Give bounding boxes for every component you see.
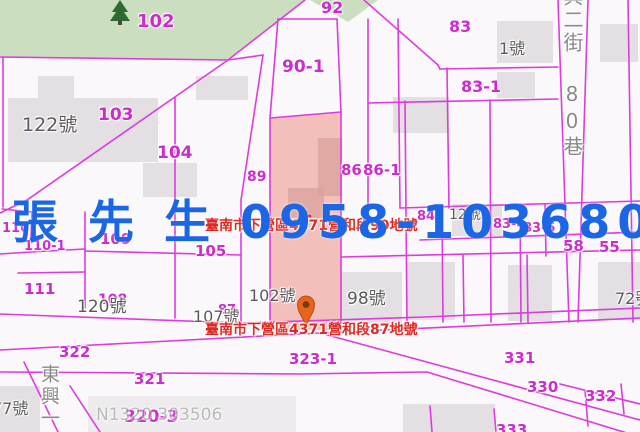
map-sheet-watermark-N1320303506: N1320 303506 — [96, 407, 222, 425]
house-number-122號: 122號 — [22, 116, 77, 136]
parcel-label-83-1: 83-1 — [461, 79, 501, 96]
parcel-label-89: 89 — [247, 170, 266, 185]
house-number-72號: 72號 — [615, 291, 640, 308]
parcel-label-111: 111 — [24, 282, 55, 298]
parcel-label-332: 332 — [585, 389, 616, 405]
parcel-label-83: 83 — [449, 19, 471, 36]
street-label-東興一: 東興一 — [38, 364, 58, 430]
parcel-label-323-1: 323-1 — [289, 352, 337, 368]
contact-overlay-text: 張 先 生 0958-103680 — [12, 186, 640, 252]
house-number-1號: 1號 — [499, 41, 525, 58]
cadastral-map[interactable]: 1021031049290-18383-18686-1898483-483-55… — [0, 0, 640, 432]
house-number-102號: 102號 — [249, 288, 296, 305]
parcel-label-330: 330 — [527, 380, 558, 396]
annotation-parcel-87: 臺南市下營區4371營和段87地號 — [205, 323, 417, 338]
parcel-label-92: 92 — [321, 0, 343, 17]
parcel-label-321: 321 — [134, 372, 165, 388]
parcel-label-90-1: 90-1 — [282, 59, 325, 77]
parcel-label-102: 102 — [137, 13, 175, 32]
parcel-label-103: 103 — [98, 107, 134, 125]
parcel-label-86-1: 86-1 — [363, 163, 401, 179]
parcel-label-322: 322 — [59, 345, 90, 361]
house-number-98號: 98號 — [347, 291, 386, 309]
parcel-label-331: 331 — [504, 351, 535, 367]
parcel-label-104: 104 — [157, 145, 193, 163]
house-number-120號: 120號 — [77, 299, 126, 317]
parcel-label-333: 333 — [496, 423, 527, 432]
street-label-興二街80巷: 興二街 80巷 — [561, 0, 582, 159]
parcel-label-86: 86 — [341, 163, 362, 179]
house-number-77號: 77號 — [0, 401, 28, 418]
